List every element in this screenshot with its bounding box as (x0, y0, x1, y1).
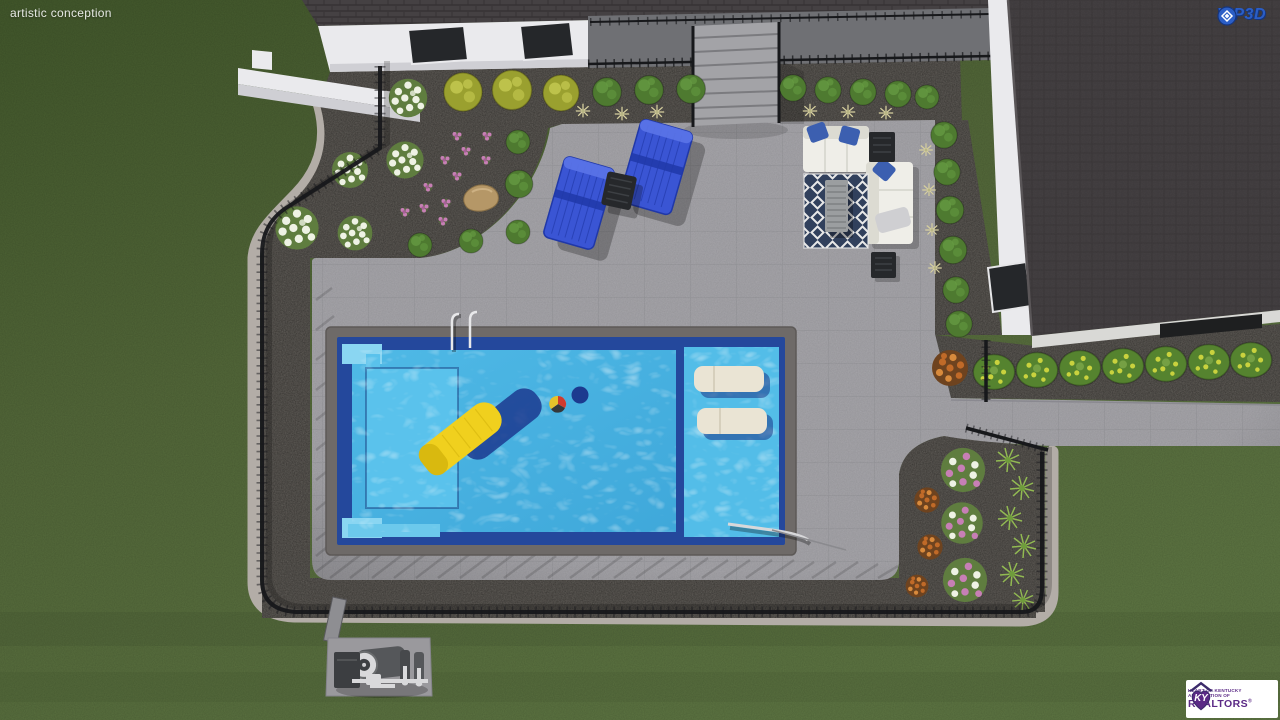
pink-flowers (420, 204, 429, 213)
pink-flowers (453, 172, 462, 181)
vip3d-logo: VIP3D (1217, 6, 1266, 24)
pink-flowers (401, 208, 410, 217)
golden-shrub (492, 70, 532, 110)
green-shrub (946, 311, 972, 337)
green-shrub (506, 130, 530, 154)
white-flower-bush (338, 216, 373, 251)
watermark: artistic conception (10, 6, 112, 20)
green-shrub (934, 159, 960, 185)
pool-equipment (326, 638, 432, 698)
pink-flowers (453, 132, 462, 141)
pink-flowers (483, 132, 492, 141)
pink-flowers (482, 156, 491, 165)
grass-tuft (803, 104, 817, 118)
grass-tuft (841, 105, 855, 119)
green-shrub (939, 236, 967, 264)
orange-flower-shrub (914, 487, 939, 512)
grass-tuft (879, 106, 893, 120)
hedge-bush (973, 354, 1015, 389)
green-shrub (943, 277, 969, 303)
coffee-table (825, 180, 853, 238)
side-table-2 (869, 132, 895, 162)
house-window-1 (408, 26, 468, 64)
green-shrub (931, 122, 957, 148)
pink-flowers (441, 156, 450, 165)
green-shrub (505, 170, 533, 198)
golden-shrub (543, 75, 579, 111)
side-table-3 (871, 252, 900, 282)
green-shrub (593, 78, 622, 107)
green-shrub (850, 79, 876, 105)
green-shrub (408, 233, 432, 257)
white-flower-bush (386, 141, 423, 178)
grass-tuft (925, 223, 939, 236)
orange-flower-shrub (917, 534, 942, 559)
grass-tuft (650, 105, 664, 119)
realtor-monogram: KY (1194, 693, 1209, 704)
backyard-pool-rendering: artistic conception VIP3D KY HEART OF KE… (0, 0, 1280, 720)
grass-tuft (615, 107, 629, 121)
hedge-bush (1059, 350, 1101, 385)
pink-white-flower-bush (941, 448, 985, 492)
green-shrub (506, 220, 530, 244)
realtor-logo: KY HEART OF KENTUCKY ASSOCIATION OF REAL… (1186, 680, 1278, 718)
grass-tuft (576, 104, 590, 118)
pink-flowers (442, 199, 451, 208)
rust-flower-shrub (932, 350, 968, 386)
realtor-heart-icon: KY (1186, 680, 1216, 712)
house-window-2 (520, 22, 574, 60)
green-shrub (635, 76, 664, 105)
green-shrub (815, 77, 841, 103)
pink-white-flower-bush (943, 558, 987, 602)
pool (326, 312, 846, 555)
registered-mark: ® (1248, 699, 1252, 705)
hedge-bush (1102, 348, 1144, 383)
green-shrub (936, 196, 964, 224)
green-shrub (885, 81, 911, 107)
orange-flower-shrub (906, 575, 929, 598)
pink-flowers (424, 183, 433, 192)
green-shrub (677, 75, 706, 104)
ball-shadow (572, 387, 589, 404)
green-shrub (780, 75, 806, 101)
green-shrub (915, 85, 939, 109)
hedge-bush (1016, 352, 1058, 387)
golden-shrub (444, 73, 482, 111)
pink-flowers (462, 147, 471, 156)
pool-lounger-1 (694, 366, 764, 392)
pink-flowers (439, 217, 448, 226)
pool-lounger-2 (697, 408, 767, 434)
white-flower-bush (389, 79, 427, 117)
wall-window (988, 262, 1031, 312)
hedge-bush (1145, 346, 1187, 381)
main-roof (1008, 0, 1280, 336)
retaining-wall-cap (252, 50, 272, 70)
grass-tuft (922, 183, 936, 196)
vip3d-icon (1217, 6, 1237, 26)
hedge-bush (1230, 342, 1272, 377)
scene-canvas (0, 0, 1280, 720)
hedge-bush (1188, 344, 1230, 379)
green-shrub (459, 229, 483, 253)
grass-tuft (928, 261, 942, 274)
pink-white-flower-bush (941, 502, 983, 544)
grass-tuft (919, 143, 933, 156)
